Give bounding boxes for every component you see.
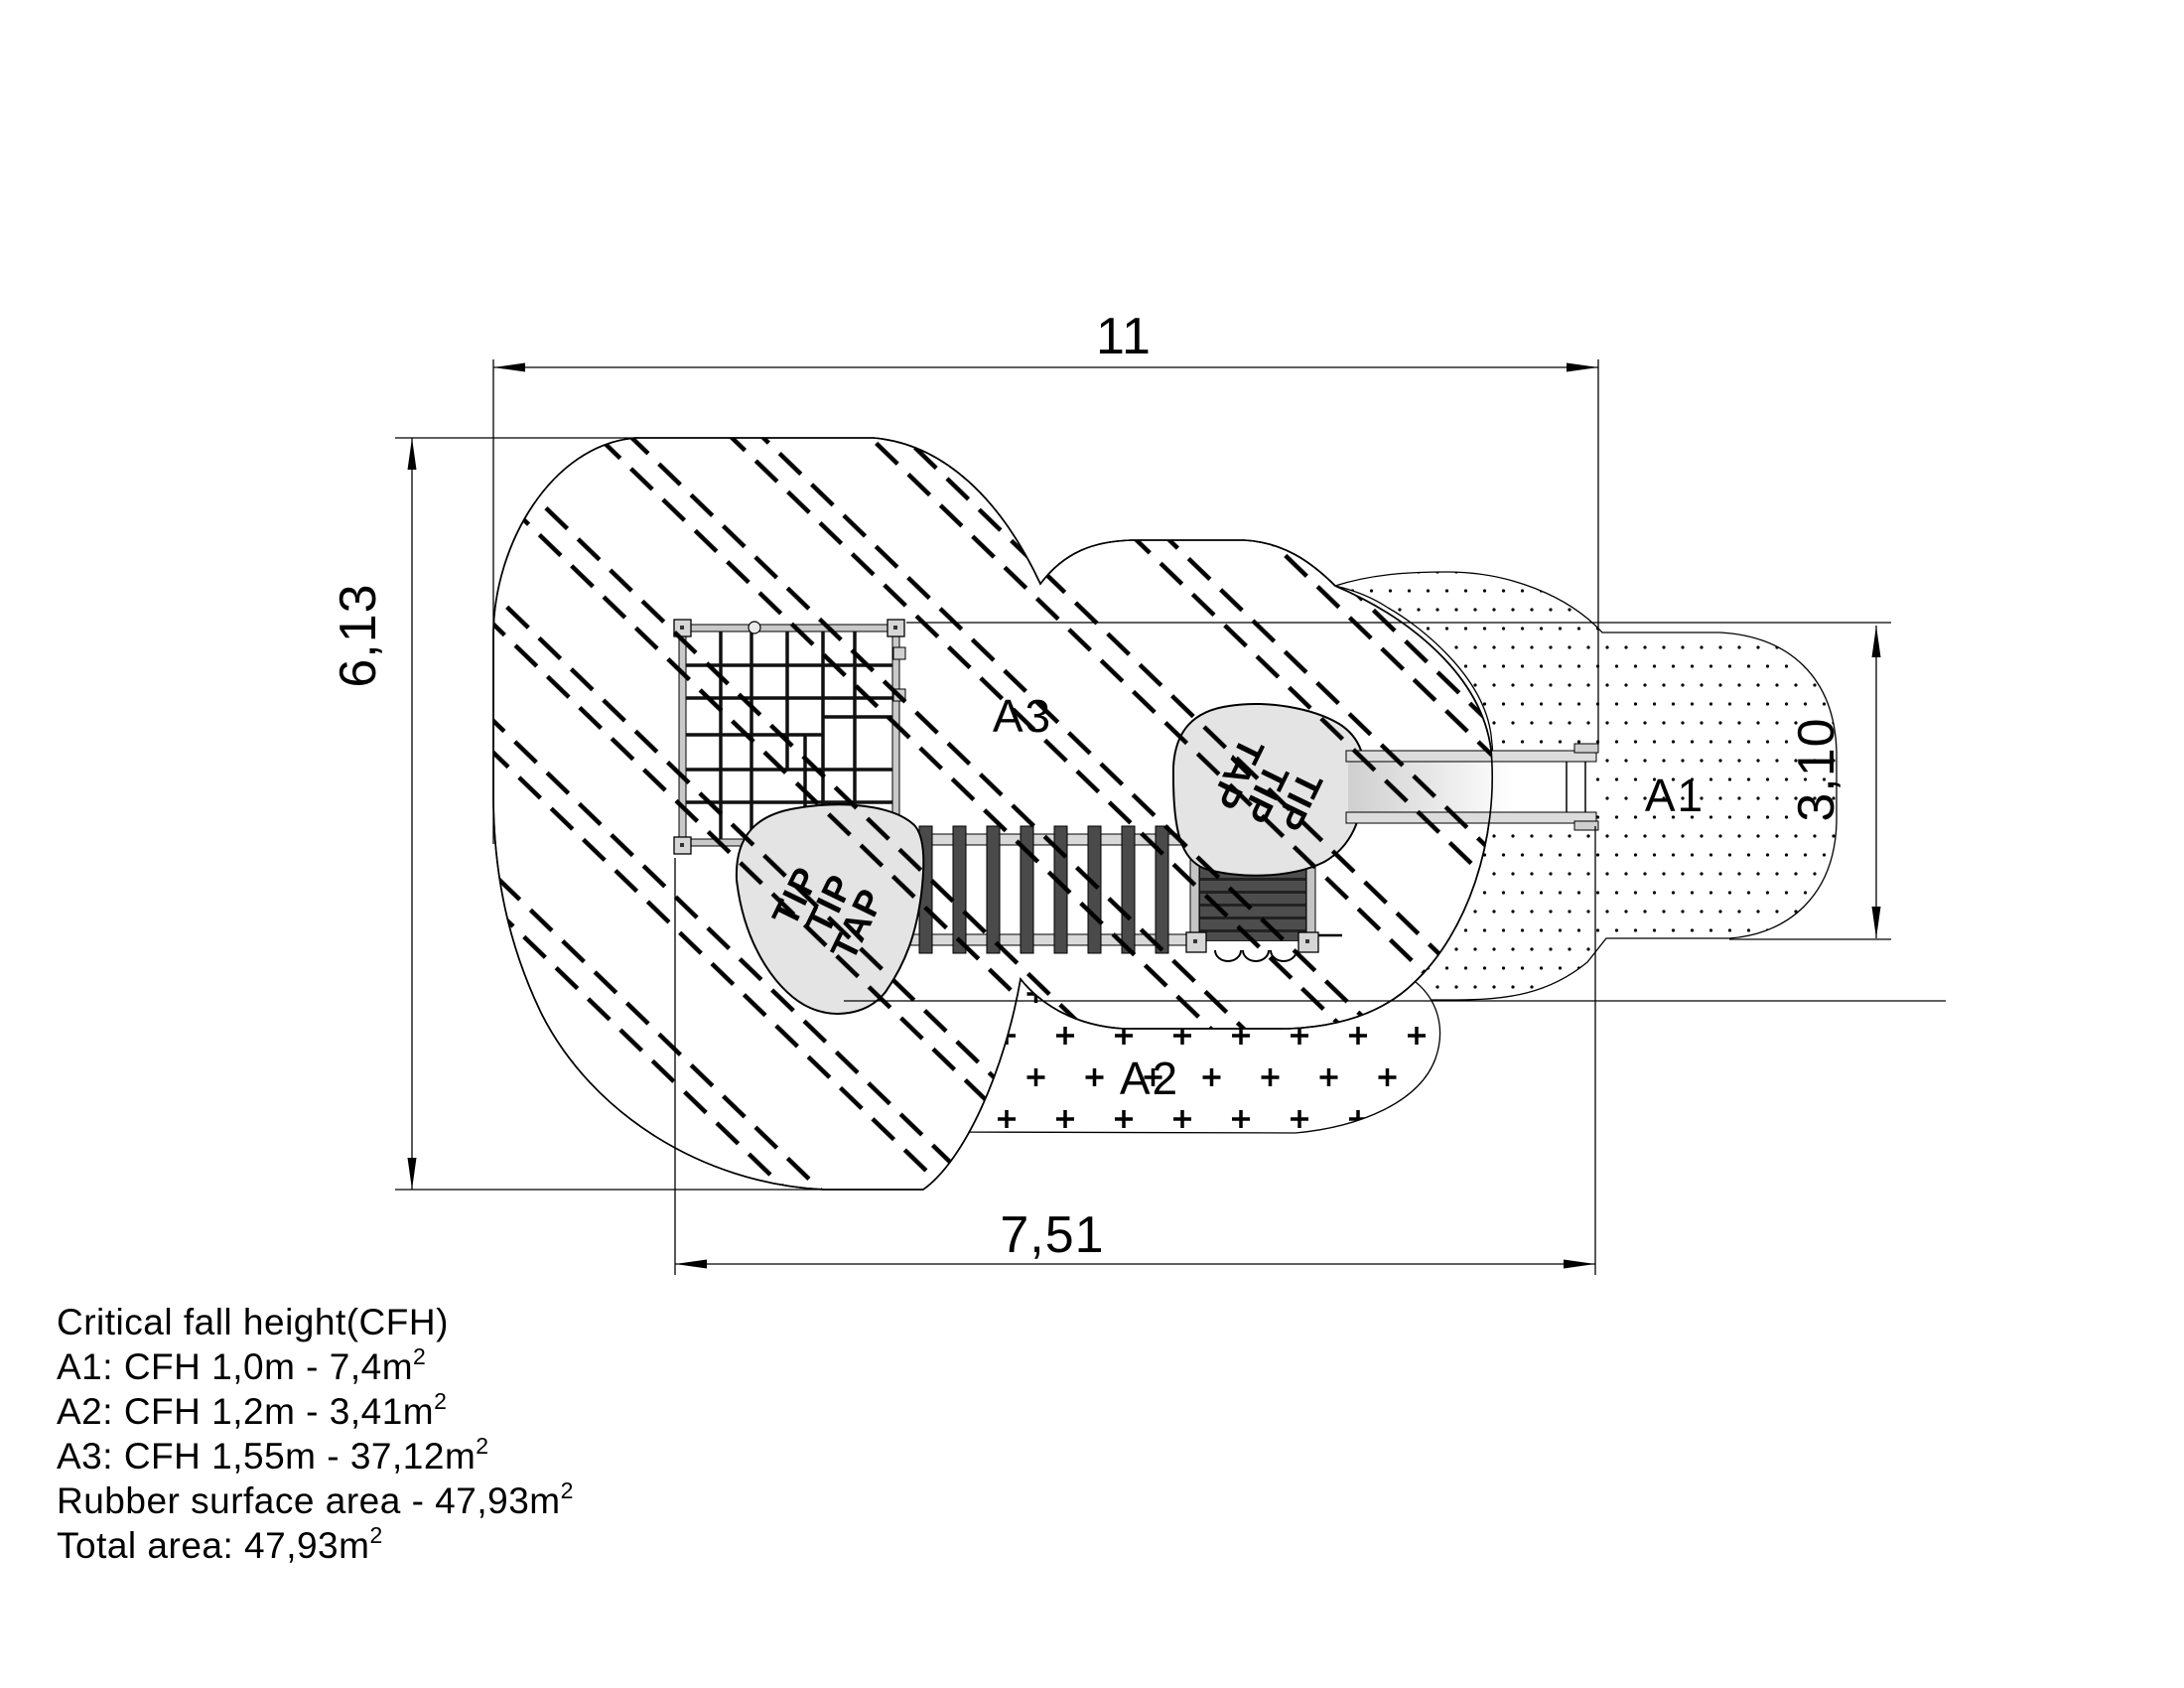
- label-area-a3: A3: [993, 690, 1052, 742]
- dimension-left: 6,13: [330, 438, 412, 1190]
- dimension-top: 11: [493, 308, 1598, 367]
- cfh-note-total-area: Total area: 47,93m2: [57, 1522, 383, 1566]
- cfh-note-a1: A1: CFH 1,0m - 7,4m2: [57, 1343, 426, 1387]
- dimension-value-bottom: 7,51: [1000, 1206, 1104, 1264]
- label-area-a1: A1: [1645, 770, 1705, 821]
- dimension-value-top: 11: [1096, 308, 1152, 365]
- cfh-note-a2: A2: CFH 1,2m - 3,41m2: [57, 1388, 447, 1432]
- slide-end-cap-top: [1574, 744, 1598, 753]
- cfh-notes-title: Critical fall height(CFH): [57, 1302, 449, 1342]
- cfh-notes-block: Critical fall height(CFH) A1: CFH 1,0m -…: [57, 1302, 574, 1566]
- label-area-a2: A2: [1120, 1053, 1179, 1104]
- cad-drawing-canvas: TIP TIP TAP TIP TIP TAP: [0, 0, 2184, 1688]
- dimension-value-left: 6,13: [330, 583, 387, 687]
- dimension-value-right: 3,10: [1788, 717, 1845, 821]
- cfh-note-a3: A3: CFH 1,55m - 37,12m2: [57, 1433, 489, 1477]
- cfh-note-rubber-area: Rubber surface area - 47,93m2: [57, 1477, 574, 1521]
- dimension-bottom: 7,51: [675, 1206, 1595, 1264]
- playground-safety-plan-page: TIP TIP TAP TIP TIP TAP: [0, 0, 2184, 1688]
